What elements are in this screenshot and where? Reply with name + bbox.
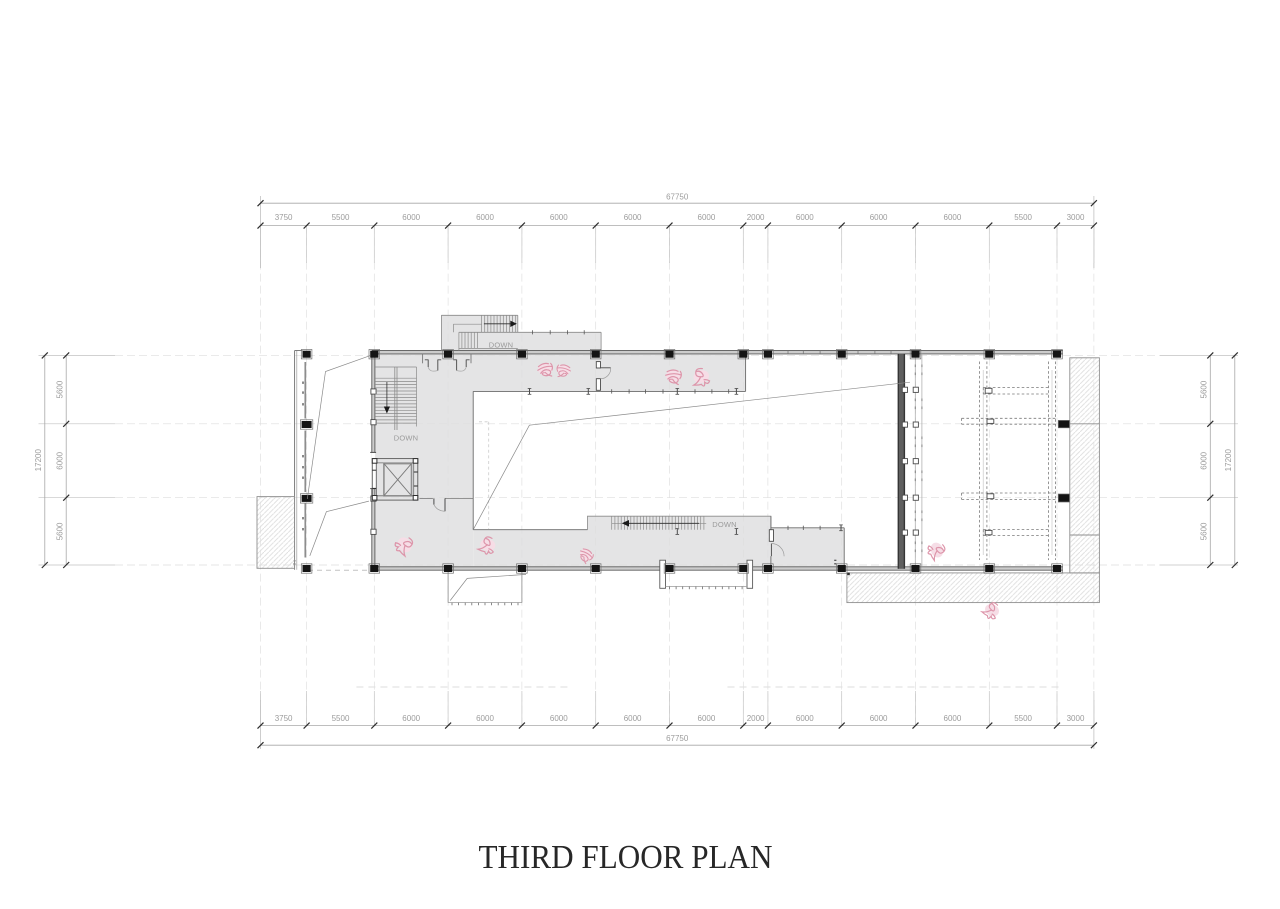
svg-text:6000: 6000: [796, 213, 814, 222]
svg-text:67750: 67750: [666, 734, 689, 743]
svg-text:5600: 5600: [1200, 522, 1209, 540]
svg-text:6000: 6000: [698, 714, 716, 723]
svg-text:DOWN: DOWN: [489, 340, 514, 349]
svg-text:6000: 6000: [796, 714, 814, 723]
svg-text:6000: 6000: [624, 213, 642, 222]
svg-text:17200: 17200: [1224, 449, 1233, 472]
svg-text:6000: 6000: [402, 213, 420, 222]
svg-text:3750: 3750: [275, 714, 293, 723]
svg-text:6000: 6000: [944, 714, 962, 723]
svg-text:6000: 6000: [624, 714, 642, 723]
svg-text:3000: 3000: [1067, 213, 1085, 222]
svg-text:6000: 6000: [476, 714, 494, 723]
svg-text:6000: 6000: [476, 213, 494, 222]
svg-text:3750: 3750: [275, 213, 293, 222]
svg-text:3000: 3000: [1067, 714, 1085, 723]
svg-text:2000: 2000: [747, 714, 765, 723]
svg-text:6000: 6000: [402, 714, 420, 723]
svg-text:2000: 2000: [747, 213, 765, 222]
svg-text:5600: 5600: [55, 522, 64, 540]
svg-text:5500: 5500: [1014, 213, 1032, 222]
svg-text:DOWN: DOWN: [394, 434, 419, 443]
svg-text:6000: 6000: [870, 213, 888, 222]
svg-text:6000: 6000: [55, 451, 64, 469]
svg-text:6000: 6000: [550, 213, 568, 222]
svg-text:6000: 6000: [698, 213, 716, 222]
svg-text:5500: 5500: [332, 714, 350, 723]
svg-text:6000: 6000: [550, 714, 568, 723]
svg-text:6000: 6000: [870, 714, 888, 723]
svg-text:THIRD FLOOR PLAN: THIRD FLOOR PLAN: [479, 839, 773, 876]
svg-text:17200: 17200: [34, 449, 43, 472]
svg-text:5500: 5500: [1014, 714, 1032, 723]
svg-text:6000: 6000: [1200, 451, 1209, 469]
svg-text:67750: 67750: [666, 193, 689, 202]
svg-text:5600: 5600: [55, 380, 64, 398]
svg-text:5500: 5500: [332, 213, 350, 222]
svg-text:6000: 6000: [944, 213, 962, 222]
svg-text:DOWN: DOWN: [712, 520, 737, 529]
svg-text:5600: 5600: [1200, 380, 1209, 398]
